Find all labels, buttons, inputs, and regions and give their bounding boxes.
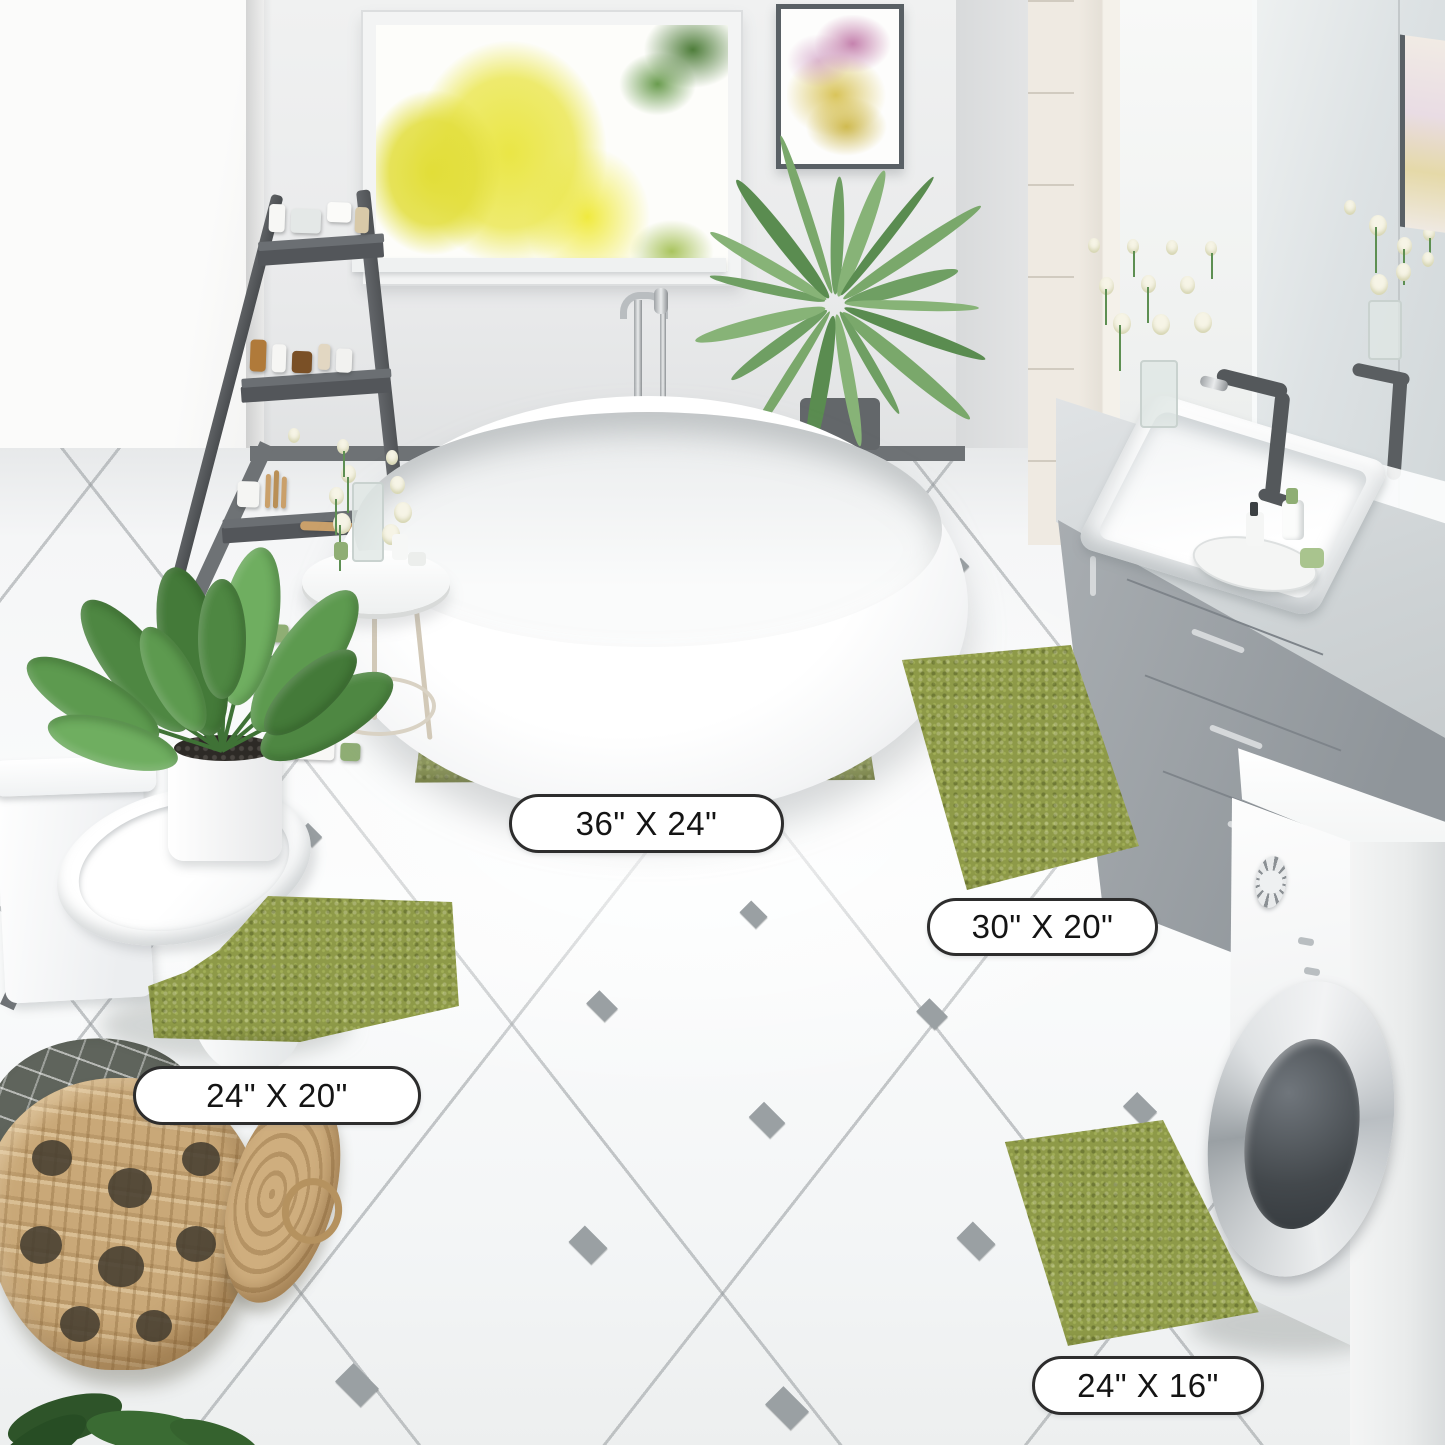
flower-stem: [1119, 325, 1121, 371]
monstera-leaf: [198, 579, 246, 699]
flower-stem: [1211, 253, 1213, 279]
white-flowers: [1088, 238, 1228, 378]
flower-bloom: [1396, 263, 1411, 281]
soap-dispenser: [1282, 500, 1304, 540]
shelf-item: [354, 207, 369, 233]
basket-dot: [108, 1168, 152, 1208]
shelf-item: [292, 351, 313, 374]
monstera-plant: [40, 505, 370, 870]
flower-bloom: [1180, 276, 1195, 294]
shelf-item: [250, 339, 267, 372]
basket-dot: [98, 1246, 144, 1287]
art-reflection: [1400, 34, 1445, 233]
bathroom-product-scene: 36" X 24" 30" X 20" 24" X 20" 24" X 16": [0, 0, 1445, 1445]
flower-stem: [1375, 227, 1377, 273]
hand-shower-head: [654, 288, 668, 314]
flower-stem: [1105, 289, 1107, 325]
lotion-pump: [1250, 502, 1258, 516]
flower-bloom: [1369, 215, 1387, 236]
flower-bloom: [1344, 200, 1356, 215]
door-handle: [1090, 556, 1096, 596]
faucet-reflection: [1386, 376, 1407, 481]
size-label-36x24: 36" X 24": [509, 794, 784, 853]
size-label-text: 24" X 20": [206, 1077, 348, 1115]
green-jar: [1300, 548, 1324, 568]
basket-dot: [136, 1310, 172, 1342]
basket-dot: [60, 1306, 100, 1342]
flower-bloom: [1113, 313, 1131, 334]
flower-bloom: [386, 450, 398, 465]
shelf-item: [336, 348, 353, 373]
flower-bloom: [394, 502, 412, 523]
flower-stem: [1133, 251, 1135, 277]
size-label-text: 30" X 20": [972, 908, 1114, 946]
size-label-text: 24" X 16": [1077, 1367, 1219, 1405]
flower-stem: [343, 451, 345, 477]
shelf-item: [318, 344, 331, 370]
shelf-item: [237, 481, 260, 508]
shelf-item: [272, 344, 287, 372]
size-label-24x20: 24" X 20": [133, 1066, 421, 1125]
size-label-24x16: 24" X 16": [1032, 1356, 1264, 1415]
size-label-text: 36" X 24": [576, 805, 718, 843]
basket-dot: [20, 1226, 62, 1264]
wall-art: [776, 4, 904, 169]
basket-dot: [182, 1142, 220, 1176]
flower-stem: [1147, 287, 1149, 323]
flower-bloom: [1422, 252, 1434, 267]
soap-pump: [1286, 488, 1298, 504]
flower-bloom: [390, 476, 405, 494]
table-jar: [408, 552, 426, 566]
basket-dot: [32, 1140, 72, 1176]
flower-bloom: [1370, 274, 1388, 295]
lotion-bottle: [1246, 512, 1264, 546]
shelf-item: [281, 476, 287, 508]
flower-bloom: [288, 428, 300, 443]
shelf-item: [290, 209, 321, 234]
shelf-item: [268, 204, 285, 233]
table-bottle: [392, 534, 408, 560]
shelf-item: [273, 470, 279, 508]
flower-bloom: [1194, 312, 1212, 333]
size-label-30x20: 30" X 20": [927, 898, 1158, 956]
shelf-item: [327, 202, 352, 223]
flower-bloom: [1152, 314, 1170, 335]
basket-dot: [176, 1226, 216, 1262]
wall-art-watercolor: [787, 15, 893, 158]
bathtub-interior: [354, 412, 942, 647]
shelf-item: [265, 474, 271, 508]
flower-bloom: [1166, 240, 1178, 255]
flower-bloom: [1088, 238, 1100, 253]
